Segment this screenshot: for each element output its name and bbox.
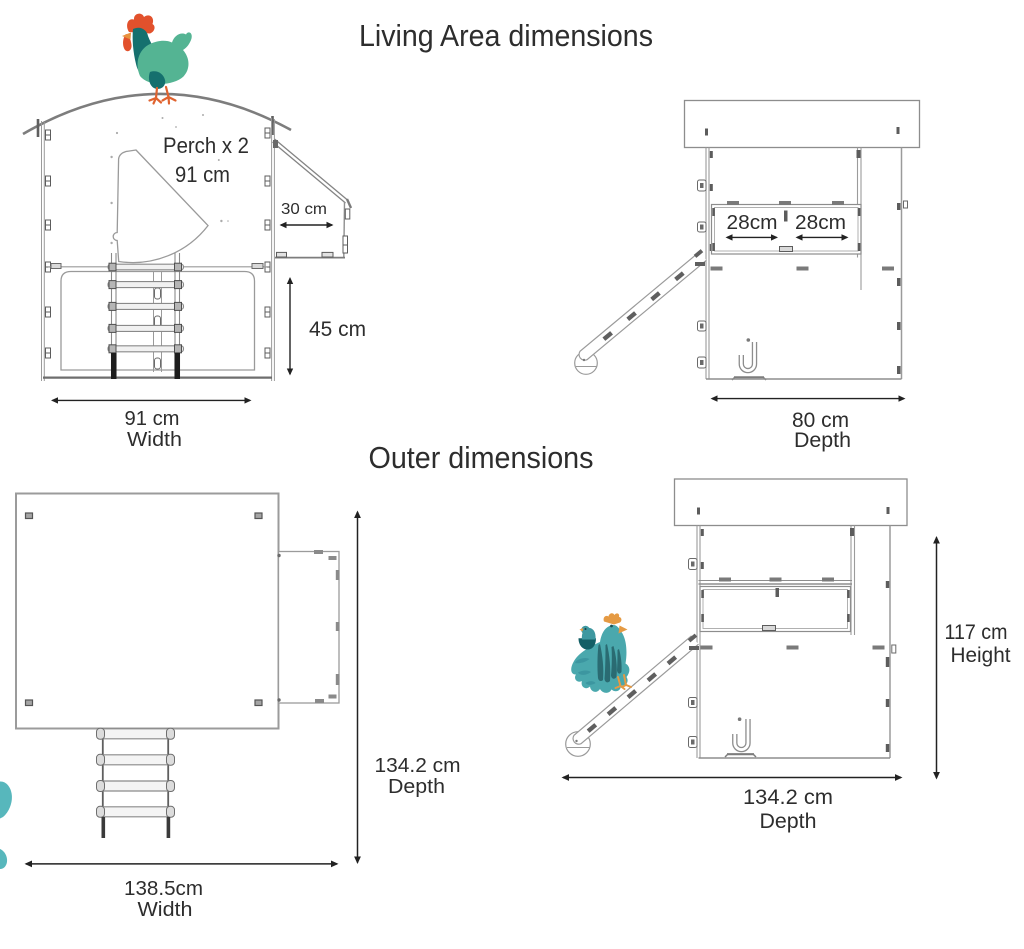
svg-text:91 cm: 91 cm — [125, 408, 180, 430]
svg-text:Height: Height — [951, 644, 1011, 667]
svg-text:Depth: Depth — [760, 810, 817, 833]
svg-text:30 cm: 30 cm — [281, 201, 327, 218]
svg-text:Living Area dimensions: Living Area dimensions — [359, 18, 653, 53]
svg-text:28cm: 28cm — [727, 212, 778, 234]
svg-text:Depth: Depth — [388, 776, 445, 798]
svg-text:Perch x 2: Perch x 2 — [163, 133, 249, 158]
svg-text:134.2 cm: 134.2 cm — [743, 786, 833, 809]
svg-text:28cm: 28cm — [795, 212, 846, 234]
svg-text:134.2 cm: 134.2 cm — [375, 755, 461, 777]
svg-text:45 cm: 45 cm — [309, 318, 366, 341]
svg-text:Depth: Depth — [794, 429, 851, 452]
svg-text:Width: Width — [127, 429, 182, 451]
svg-text:138.5cm: 138.5cm — [124, 878, 203, 900]
svg-text:91 cm: 91 cm — [175, 162, 230, 187]
svg-text:117 cm: 117 cm — [945, 621, 1008, 644]
svg-text:Outer dimensions: Outer dimensions — [369, 440, 594, 475]
svg-text:Width: Width — [138, 899, 193, 921]
